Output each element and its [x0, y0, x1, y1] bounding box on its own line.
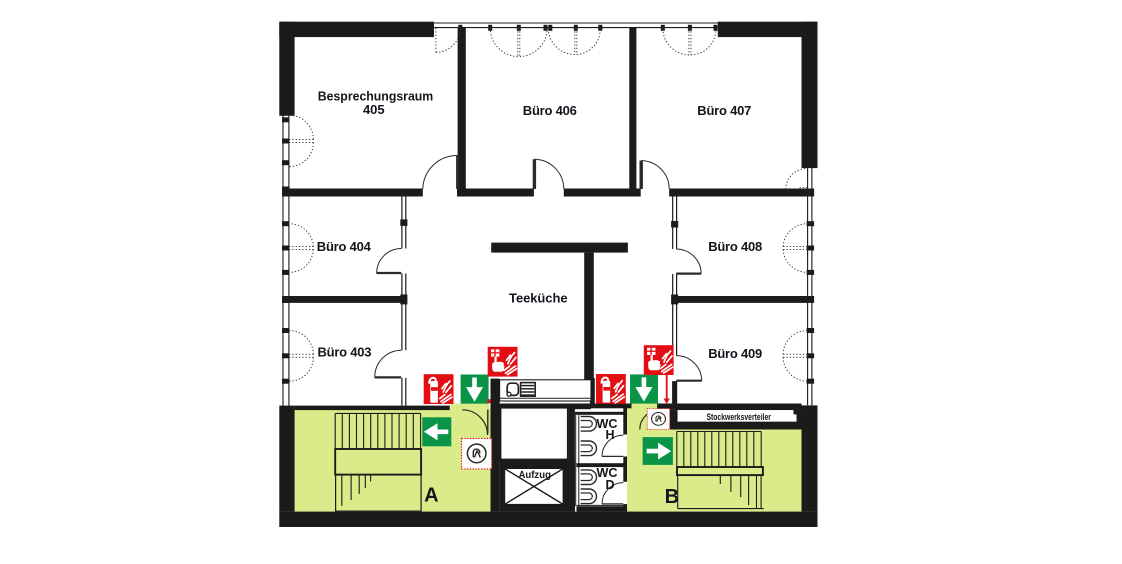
svg-text:Büro 409: Büro 409: [708, 346, 762, 361]
svg-text:Büro 407: Büro 407: [697, 103, 751, 118]
svg-text:Büro 406: Büro 406: [523, 103, 577, 118]
svg-text:B: B: [665, 486, 679, 508]
svg-text:Büro 404: Büro 404: [317, 239, 372, 254]
svg-text:Teeküche: Teeküche: [509, 290, 568, 305]
svg-text:Büro 403: Büro 403: [318, 344, 372, 359]
svg-text:Büro 408: Büro 408: [708, 239, 762, 254]
svg-text:405: 405: [363, 102, 385, 117]
svg-text:D: D: [605, 478, 614, 492]
svg-text:Stockwerksverteiler: Stockwerksverteiler: [706, 412, 771, 422]
svg-text:H: H: [605, 428, 614, 442]
svg-text:Aufzug: Aufzug: [518, 469, 551, 481]
svg-text:A: A: [424, 484, 438, 506]
